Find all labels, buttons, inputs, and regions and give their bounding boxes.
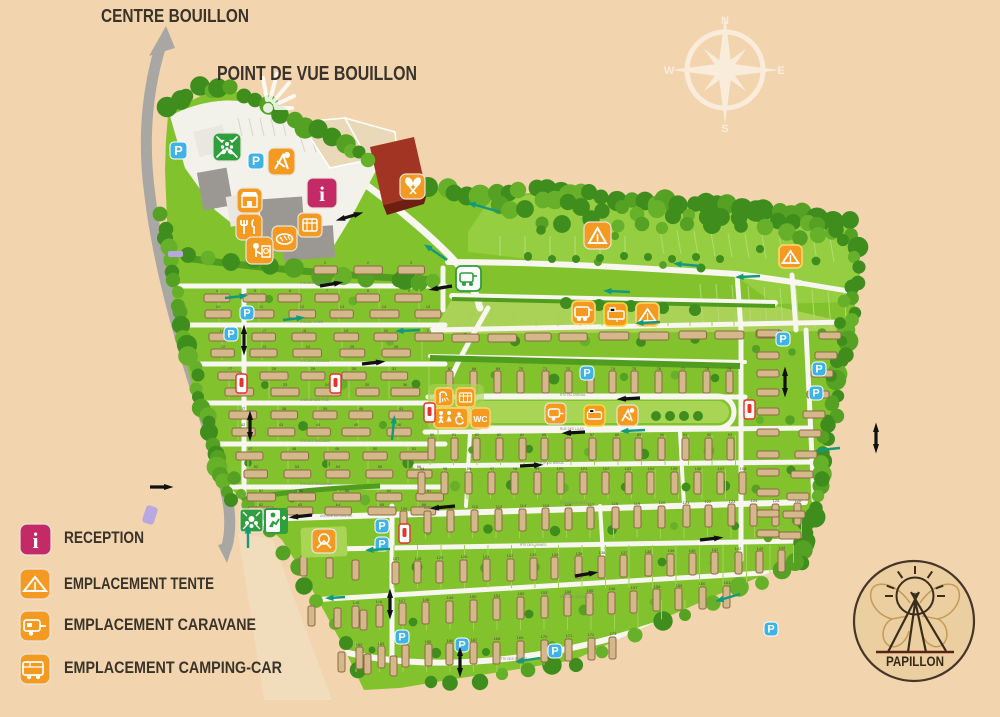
svg-text:59: 59 bbox=[345, 488, 350, 493]
svg-text:W: W bbox=[664, 65, 675, 77]
svg-text:82: 82 bbox=[475, 432, 480, 437]
svg-text:34: 34 bbox=[325, 382, 330, 387]
svg-text:28: 28 bbox=[272, 366, 277, 371]
svg-text:69: 69 bbox=[496, 366, 501, 371]
svg-text:118: 118 bbox=[612, 501, 619, 506]
svg-text:EMPLACEMENT TENTE: EMPLACEMENT TENTE bbox=[64, 574, 214, 593]
svg-text:101: 101 bbox=[581, 466, 588, 471]
svg-text:168: 168 bbox=[494, 636, 501, 641]
svg-text:P: P bbox=[227, 329, 234, 341]
svg-text:113: 113 bbox=[496, 504, 503, 509]
svg-text:48: 48 bbox=[292, 446, 297, 451]
svg-text:95: 95 bbox=[443, 466, 448, 471]
svg-text:RTE DES BOULEAUX: RTE DES BOULEAUX bbox=[300, 482, 333, 486]
svg-text:131: 131 bbox=[483, 554, 490, 559]
svg-text:92: 92 bbox=[707, 432, 712, 437]
svg-text:P: P bbox=[815, 364, 822, 376]
svg-text:65: 65 bbox=[380, 502, 385, 507]
svg-text:172: 172 bbox=[588, 632, 595, 637]
svg-text:108: 108 bbox=[740, 466, 747, 471]
svg-text:103: 103 bbox=[625, 466, 632, 471]
svg-text:146: 146 bbox=[376, 599, 383, 604]
svg-text:157: 157 bbox=[631, 585, 638, 590]
svg-text:137: 137 bbox=[621, 550, 628, 555]
svg-text:RTE DU VIVIER: RTE DU VIVIER bbox=[300, 320, 324, 324]
svg-text:AVENUE DU CENTRE: AVENUE DU CENTRE bbox=[320, 514, 352, 518]
svg-text:148: 148 bbox=[423, 597, 430, 602]
svg-text:163: 163 bbox=[378, 641, 385, 646]
svg-text:15: 15 bbox=[426, 304, 431, 309]
svg-text:24: 24 bbox=[306, 344, 311, 349]
svg-text:158: 158 bbox=[654, 584, 661, 589]
svg-text:36: 36 bbox=[403, 382, 408, 387]
svg-text:14: 14 bbox=[382, 304, 387, 309]
svg-text:47: 47 bbox=[248, 446, 253, 451]
svg-text:i: i bbox=[319, 182, 325, 206]
svg-text:44: 44 bbox=[316, 422, 321, 427]
svg-text:114: 114 bbox=[520, 503, 527, 508]
svg-text:54: 54 bbox=[336, 464, 341, 469]
svg-text:87: 87 bbox=[590, 432, 595, 437]
svg-text:139: 139 bbox=[668, 548, 675, 553]
svg-text:33: 33 bbox=[283, 382, 288, 387]
svg-text:162: 162 bbox=[356, 642, 363, 647]
svg-text:80: 80 bbox=[430, 432, 435, 437]
svg-text:159: 159 bbox=[676, 583, 683, 588]
svg-text:171: 171 bbox=[566, 633, 573, 638]
svg-text:RTE DES GENETS: RTE DES GENETS bbox=[560, 501, 588, 505]
svg-text:98: 98 bbox=[513, 466, 518, 471]
svg-text:20: 20 bbox=[384, 328, 389, 333]
svg-text:RTE DU CHENAL: RTE DU CHENAL bbox=[560, 393, 586, 397]
svg-text:117: 117 bbox=[588, 502, 595, 507]
svg-text:AVENUE DES PINS: AVENUE DES PINS bbox=[300, 398, 329, 402]
svg-text:123: 123 bbox=[729, 499, 736, 504]
svg-text:i: i bbox=[32, 528, 38, 553]
svg-text:91: 91 bbox=[683, 432, 688, 437]
svg-text:138: 138 bbox=[645, 549, 652, 554]
svg-text:134: 134 bbox=[552, 552, 559, 557]
svg-text:27: 27 bbox=[228, 366, 233, 371]
svg-text:81: 81 bbox=[452, 432, 457, 437]
svg-text:151: 151 bbox=[494, 593, 501, 598]
svg-text:41: 41 bbox=[399, 406, 404, 411]
svg-text:P: P bbox=[398, 632, 405, 644]
svg-text:RTE DES ORMES: RTE DES ORMES bbox=[520, 543, 546, 547]
svg-text:P: P bbox=[779, 334, 786, 346]
svg-text:132: 132 bbox=[507, 553, 514, 558]
svg-text:112: 112 bbox=[472, 504, 479, 509]
svg-text:E: E bbox=[777, 65, 784, 77]
svg-text:67: 67 bbox=[448, 366, 453, 371]
svg-text:105: 105 bbox=[671, 466, 678, 471]
svg-text:153: 153 bbox=[541, 590, 548, 595]
svg-text:13: 13 bbox=[340, 304, 345, 309]
svg-text:64: 64 bbox=[336, 502, 341, 507]
svg-text:79: 79 bbox=[727, 366, 732, 371]
svg-text:110: 110 bbox=[424, 505, 431, 510]
svg-text:100: 100 bbox=[557, 466, 564, 471]
svg-text:18: 18 bbox=[302, 328, 307, 333]
svg-text:45: 45 bbox=[354, 422, 359, 427]
svg-text:RECEPTION: RECEPTION bbox=[64, 528, 144, 547]
svg-text:83: 83 bbox=[497, 432, 502, 437]
svg-text:52: 52 bbox=[254, 464, 259, 469]
svg-text:121: 121 bbox=[683, 500, 690, 505]
svg-text:106: 106 bbox=[695, 466, 702, 471]
svg-text:150: 150 bbox=[470, 594, 477, 599]
svg-text:53: 53 bbox=[295, 464, 300, 469]
svg-text:167: 167 bbox=[471, 637, 478, 642]
svg-text:P: P bbox=[378, 521, 385, 533]
svg-text:RTE DES MELEZES: RTE DES MELEZES bbox=[300, 439, 330, 443]
svg-text:154: 154 bbox=[565, 589, 572, 594]
svg-text:93: 93 bbox=[728, 432, 733, 437]
svg-text:85: 85 bbox=[542, 432, 547, 437]
svg-text:97: 97 bbox=[490, 466, 495, 471]
svg-text:19: 19 bbox=[344, 328, 349, 333]
svg-text:31: 31 bbox=[392, 366, 397, 371]
svg-text:88: 88 bbox=[615, 432, 620, 437]
svg-text:127: 127 bbox=[393, 556, 400, 561]
svg-text:156: 156 bbox=[609, 586, 616, 591]
svg-text:124: 124 bbox=[751, 498, 758, 503]
svg-text:51: 51 bbox=[412, 446, 417, 451]
svg-text:133: 133 bbox=[530, 552, 537, 557]
svg-text:135: 135 bbox=[576, 551, 583, 556]
svg-text:76: 76 bbox=[657, 366, 662, 371]
svg-text:115: 115 bbox=[543, 503, 550, 508]
svg-text:144: 144 bbox=[779, 545, 786, 550]
svg-text:109: 109 bbox=[401, 506, 408, 511]
svg-text:38: 38 bbox=[282, 406, 287, 411]
svg-text:90: 90 bbox=[660, 432, 665, 437]
svg-text:43: 43 bbox=[279, 422, 284, 427]
svg-text:102: 102 bbox=[603, 466, 610, 471]
svg-text:10: 10 bbox=[216, 304, 221, 309]
svg-text:136: 136 bbox=[599, 550, 606, 555]
svg-text:165: 165 bbox=[425, 639, 432, 644]
svg-text:RTE DES TILLEULS: RTE DES TILLEULS bbox=[300, 359, 329, 363]
svg-text:23: 23 bbox=[262, 344, 267, 349]
svg-text:75: 75 bbox=[632, 366, 637, 371]
svg-text:S: S bbox=[721, 123, 728, 135]
svg-text:37: 37 bbox=[241, 406, 246, 411]
svg-text:P: P bbox=[252, 154, 260, 168]
svg-text:25: 25 bbox=[350, 344, 355, 349]
svg-text:P: P bbox=[243, 308, 250, 320]
svg-text:128: 128 bbox=[415, 556, 422, 561]
svg-text:94: 94 bbox=[420, 466, 425, 471]
svg-text:12: 12 bbox=[300, 304, 305, 309]
svg-text:61: 61 bbox=[427, 488, 432, 493]
svg-text:29: 29 bbox=[311, 366, 316, 371]
svg-text:166: 166 bbox=[447, 638, 454, 643]
svg-text:39: 39 bbox=[323, 406, 328, 411]
svg-text:EMPLACEMENT CARAVANE: EMPLACEMENT CARAVANE bbox=[64, 615, 256, 634]
svg-text:147: 147 bbox=[399, 598, 406, 603]
svg-text:170: 170 bbox=[541, 634, 548, 639]
svg-text:RUE DES LILAS: RUE DES LILAS bbox=[560, 427, 584, 431]
svg-text:63: 63 bbox=[298, 502, 303, 507]
svg-text:57: 57 bbox=[259, 488, 264, 493]
svg-text:60: 60 bbox=[387, 488, 392, 493]
svg-text:145: 145 bbox=[353, 600, 360, 605]
svg-text:152: 152 bbox=[518, 591, 525, 596]
svg-text:161: 161 bbox=[724, 580, 731, 585]
svg-text:140: 140 bbox=[689, 548, 696, 553]
svg-text:89: 89 bbox=[637, 432, 642, 437]
svg-text:143: 143 bbox=[757, 546, 764, 551]
svg-text:71: 71 bbox=[543, 366, 548, 371]
svg-text:50: 50 bbox=[373, 446, 378, 451]
svg-text:P: P bbox=[551, 646, 558, 658]
svg-text:125: 125 bbox=[773, 498, 780, 503]
svg-text:RUE DES ACACIAS: RUE DES ACACIAS bbox=[560, 595, 589, 599]
svg-text:55: 55 bbox=[378, 464, 383, 469]
svg-text:119: 119 bbox=[634, 501, 641, 506]
svg-text:P: P bbox=[767, 624, 774, 636]
svg-text:RTE DU BREUIL: RTE DU BREUIL bbox=[540, 461, 564, 465]
svg-text:120: 120 bbox=[659, 500, 666, 505]
svg-text:142: 142 bbox=[735, 546, 742, 551]
svg-text:46: 46 bbox=[397, 422, 402, 427]
svg-text:42: 42 bbox=[241, 422, 246, 427]
svg-text:77: 77 bbox=[681, 366, 686, 371]
svg-text:107: 107 bbox=[718, 466, 725, 471]
svg-text:173: 173 bbox=[610, 631, 617, 636]
svg-text:68: 68 bbox=[472, 366, 477, 371]
svg-text:155: 155 bbox=[587, 588, 594, 593]
svg-text:70: 70 bbox=[519, 366, 524, 371]
svg-text:72: 72 bbox=[566, 366, 571, 371]
svg-text:17: 17 bbox=[262, 328, 267, 333]
svg-text:22: 22 bbox=[221, 344, 226, 349]
svg-text:PAPILLON: PAPILLON bbox=[886, 653, 944, 669]
svg-text:P: P bbox=[174, 143, 183, 158]
svg-text:CENTRE BOUILLON: CENTRE BOUILLON bbox=[101, 6, 249, 26]
svg-text:30: 30 bbox=[352, 366, 357, 371]
svg-text:49: 49 bbox=[335, 446, 340, 451]
svg-text:104: 104 bbox=[648, 466, 655, 471]
svg-text:141: 141 bbox=[712, 547, 719, 552]
svg-text:129: 129 bbox=[437, 555, 444, 560]
svg-text:35: 35 bbox=[365, 382, 370, 387]
svg-text:P: P bbox=[583, 368, 590, 380]
svg-text:130: 130 bbox=[461, 554, 468, 559]
svg-text:N: N bbox=[721, 15, 729, 27]
svg-text:62: 62 bbox=[259, 502, 264, 507]
svg-text:74: 74 bbox=[611, 366, 616, 371]
svg-text:P: P bbox=[812, 388, 819, 400]
svg-text:40: 40 bbox=[359, 406, 364, 411]
svg-text:149: 149 bbox=[447, 595, 454, 600]
svg-text:96: 96 bbox=[467, 466, 472, 471]
svg-text:160: 160 bbox=[699, 581, 706, 586]
svg-text:122: 122 bbox=[705, 499, 712, 504]
svg-text:84: 84 bbox=[520, 432, 525, 437]
svg-text:EMPLACEMENT CAMPING-CAR: EMPLACEMENT CAMPING-CAR bbox=[64, 658, 282, 677]
svg-text:21: 21 bbox=[427, 328, 432, 333]
svg-text:26: 26 bbox=[394, 344, 399, 349]
svg-text:WC: WC bbox=[473, 414, 487, 424]
svg-text:78: 78 bbox=[705, 366, 710, 371]
svg-text:169: 169 bbox=[517, 635, 524, 640]
svg-text:POINT DE VUE BOUILLON: POINT DE VUE BOUILLON bbox=[217, 63, 417, 85]
svg-text:58: 58 bbox=[299, 488, 304, 493]
